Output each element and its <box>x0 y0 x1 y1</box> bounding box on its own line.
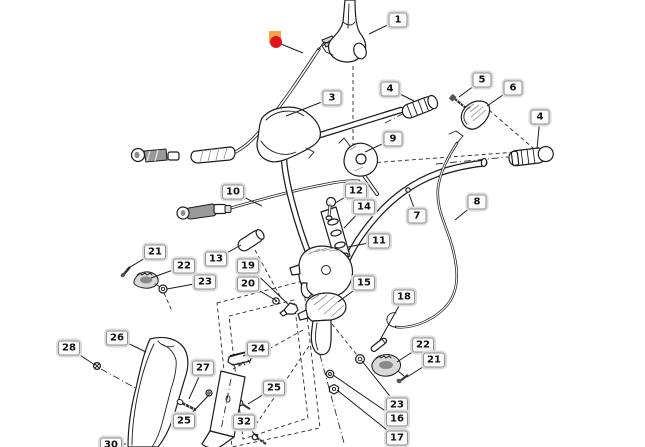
part-callout-14[interactable]: 14 <box>353 200 375 215</box>
part-plate-bracket <box>202 371 245 447</box>
part-callout-9[interactable]: 9 <box>384 132 403 147</box>
part-callout-30[interactable]: 30 <box>100 438 122 447</box>
marker-leader-line <box>281 44 303 53</box>
parts-diagram-stage: 1345649101214781113192021222315182221231… <box>0 0 645 447</box>
part-callout-20[interactable]: 20 <box>237 277 259 292</box>
part-callout-24[interactable]: 24 <box>247 342 269 357</box>
part-callout-13[interactable]: 13 <box>205 252 227 267</box>
part-callout-32[interactable]: 32 <box>233 415 255 430</box>
part-washer-23-left <box>159 285 167 293</box>
part-callout-18[interactable]: 18 <box>393 290 415 305</box>
part-callout-4[interactable]: 4 <box>381 82 400 97</box>
selected-part-marker-dot <box>270 36 282 48</box>
part-screw-28 <box>94 363 101 370</box>
part-callout-12[interactable]: 12 <box>345 184 367 199</box>
part-lever-1 <box>322 0 368 62</box>
part-callout-28[interactable]: 28 <box>58 341 80 356</box>
part-callout-25[interactable]: 25 <box>263 381 285 396</box>
part-bolt-27 <box>176 399 196 411</box>
part-callout-8[interactable]: 8 <box>468 195 487 210</box>
part-callout-16[interactable]: 16 <box>386 412 408 427</box>
part-callout-15[interactable]: 15 <box>353 276 375 291</box>
part-callout-21[interactable]: 21 <box>423 353 445 368</box>
part-nut-17 <box>330 385 339 395</box>
part-callout-23[interactable]: 23 <box>194 275 216 290</box>
part-callout-26[interactable]: 26 <box>106 331 128 346</box>
part-callout-23[interactable]: 23 <box>386 398 408 413</box>
part-grip-4-right <box>508 146 554 167</box>
part-clamp-22-left <box>134 272 162 288</box>
part-screw-21-right <box>396 375 408 384</box>
part-callout-3[interactable]: 3 <box>323 91 342 106</box>
part-callout-22[interactable]: 22 <box>412 338 434 353</box>
part-callout-1[interactable]: 1 <box>389 13 408 28</box>
part-pin-18 <box>370 337 388 352</box>
part-lever-6 <box>461 101 489 129</box>
part-grip-15 <box>298 293 346 355</box>
part-screw-5 <box>449 94 467 109</box>
part-callout-5[interactable]: 5 <box>473 73 492 88</box>
part-callout-11[interactable]: 11 <box>368 234 390 249</box>
parts-diagram-canvas <box>0 0 645 447</box>
part-washer-16 <box>326 370 334 378</box>
part-knob-13 <box>236 228 266 253</box>
part-callout-4[interactable]: 4 <box>531 110 550 125</box>
part-callout-19[interactable]: 19 <box>237 259 259 274</box>
part-callout-27[interactable]: 27 <box>192 361 214 376</box>
part-frame-bracket <box>290 246 353 298</box>
part-grip-4-left <box>400 94 439 120</box>
part-callout-17[interactable]: 17 <box>386 431 408 446</box>
part-cover-26 <box>128 337 188 447</box>
part-callout-10[interactable]: 10 <box>222 185 244 200</box>
part-callout-7[interactable]: 7 <box>408 209 427 224</box>
part-callout-25[interactable]: 25 <box>173 414 195 429</box>
screw-7 <box>406 188 410 192</box>
part-callout-22[interactable]: 22 <box>173 259 195 274</box>
part-callout-6[interactable]: 6 <box>504 81 523 96</box>
part-clamp-22-right <box>372 354 404 376</box>
part-callout-21[interactable]: 21 <box>144 245 166 260</box>
